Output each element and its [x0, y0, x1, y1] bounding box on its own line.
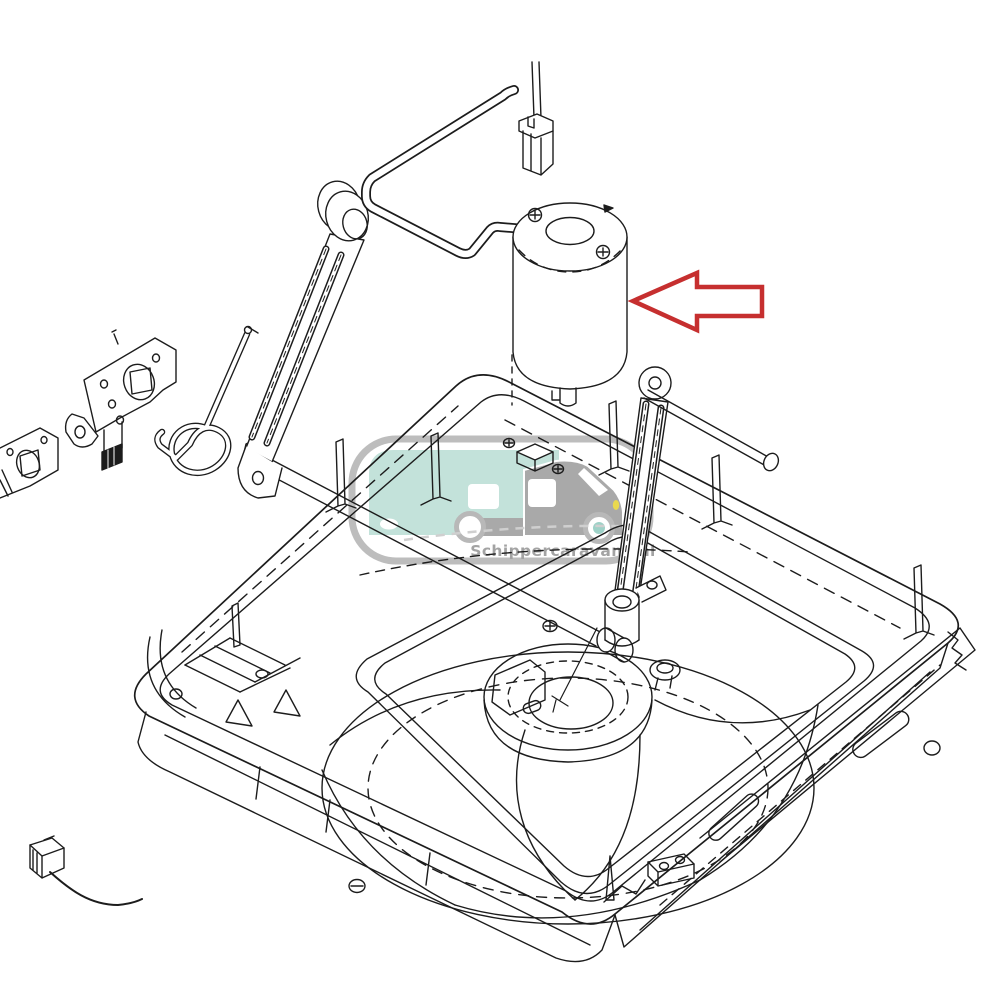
diagram-canvas: Schippercaravans.nl — [0, 0, 1000, 1000]
wire-connector-cable — [30, 836, 142, 905]
right-wall-boss — [924, 741, 940, 755]
pan-front-left-wall — [138, 712, 615, 962]
connector-wire — [532, 62, 541, 118]
cable-plug-hatch — [33, 850, 37, 873]
crank-lever — [552, 628, 597, 712]
gearbox-bracket-partial — [0, 428, 58, 498]
motor-mount-ring — [484, 628, 652, 762]
caravan-front-wheel — [457, 514, 484, 541]
pan-wall-line — [165, 735, 590, 945]
caravan-door-window — [528, 479, 556, 507]
partial-bracket-plate — [0, 428, 58, 498]
motor-rim-marker — [604, 205, 613, 212]
caravan-headlight — [613, 500, 619, 510]
cable — [50, 872, 142, 905]
gearbox-plate — [84, 338, 176, 432]
mount-ring-dashed — [508, 661, 628, 733]
exploded-parts-diagram: Schippercaravans.nl — [0, 0, 1000, 1000]
pan-wall-line — [640, 672, 930, 930]
caravan-logo-icon — [368, 449, 648, 542]
connector-collar — [519, 114, 553, 138]
crank-tube-cap-end — [615, 638, 633, 662]
motor-top-face — [513, 203, 627, 271]
mount-ring-wall — [484, 700, 652, 762]
caravan-window — [468, 484, 499, 509]
connector-body — [523, 131, 553, 175]
power-connector — [519, 62, 553, 175]
gearbox-pin — [112, 330, 118, 344]
right-edge-serration — [948, 632, 966, 670]
motor-shaft — [552, 388, 576, 406]
red-arrow-annotation-icon — [633, 273, 762, 330]
fan-assembly — [322, 525, 874, 924]
vent-motor — [512, 203, 627, 406]
mount-ring-inner — [529, 677, 613, 729]
cable-plug-top — [30, 838, 64, 856]
gearbox-shaft-knurl — [102, 444, 122, 470]
mount-ring-outer — [484, 644, 652, 750]
right-wall-band — [700, 628, 975, 862]
bracket-slot — [522, 699, 542, 715]
crank-bushing-boss — [650, 660, 680, 690]
latch-platform — [148, 603, 300, 726]
caravan-wheel-hub — [593, 522, 605, 534]
lift-arm-left — [238, 176, 374, 498]
